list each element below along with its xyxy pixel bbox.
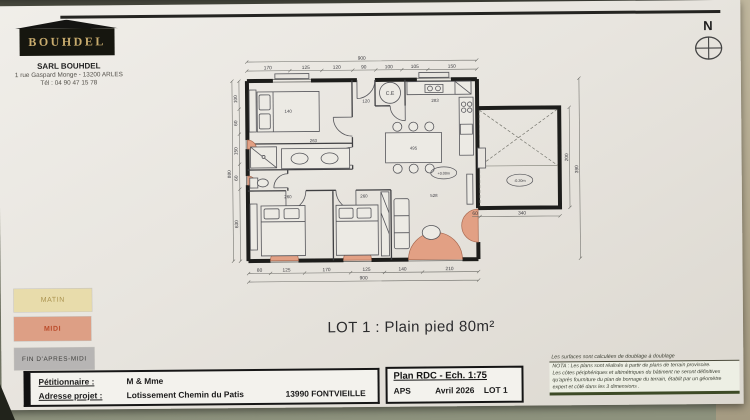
company-address: 1 rue Gaspard Monge - 13200 ARLES: [5, 71, 133, 79]
fridge: [455, 81, 471, 94]
dim-left: 100: [233, 95, 239, 103]
dim-bottom: 125: [283, 268, 291, 274]
shutter-boxes: [275, 72, 449, 79]
level-interior-label: +0.00m: [438, 172, 450, 176]
dim-top: 120: [333, 65, 341, 71]
dim-table: 495: [410, 146, 418, 151]
titleblock-client: Pétitionnaire : M & Mme Adresse projet :…: [23, 368, 379, 407]
dim-top: 90: [361, 64, 367, 70]
wardrobe-3: [381, 192, 390, 256]
compass-icon: [692, 33, 726, 65]
legend-midi: MIDI: [14, 316, 91, 341]
photo-of-plan-sheet: BOUHDEL SARL BOUHDEL 1 rue Gaspard Monge…: [0, 0, 750, 420]
dim-entry: 120: [362, 99, 370, 104]
plan-title: Plan RDC - Ech. 1:75: [393, 370, 515, 382]
dim-bath: 263: [310, 138, 318, 143]
dim-overall-top: 900: [358, 56, 366, 62]
wardrobe-1: [249, 90, 256, 132]
legend-matin: MATIN: [14, 288, 92, 312]
floor-plan: 900 170 125 120 90 100 105 150 80 125 17…: [227, 51, 593, 304]
dim-terrace: 340: [518, 210, 526, 216]
nota-line-4: expert et côté dans les 3 dimensions .: [553, 382, 737, 390]
dim-left: 630: [234, 220, 240, 228]
legend-fin-apres-midi: FIN D'APRES-MIDI: [14, 347, 94, 370]
furniture: [249, 81, 475, 257]
dim-bottom: 170: [323, 267, 331, 273]
shower: [250, 147, 276, 168]
logo-text: BOUHDEL: [28, 34, 106, 50]
dim-living: 528: [430, 193, 438, 198]
dim-top: 100: [385, 64, 393, 70]
level-markers: [431, 166, 533, 187]
dim-top: 170: [264, 65, 272, 71]
vanity-double-sink: [282, 148, 350, 169]
dim-left: 60: [233, 120, 239, 126]
dim-bed1: 140: [284, 109, 292, 114]
company-logo: BOUHDEL: [19, 28, 114, 56]
company-name: SARL BOUHDEL: [13, 61, 125, 71]
dim-top: 125: [302, 65, 310, 71]
dim-top: 105: [411, 64, 419, 70]
dim-right: 200: [564, 153, 570, 161]
wardrobe-2: [250, 204, 257, 250]
level-terrace-label: -0.20m: [514, 179, 526, 183]
adresse-label: Adresse projet :: [39, 390, 127, 401]
petitionnaire-label: Pétitionnaire :: [38, 376, 126, 387]
toilet: [250, 178, 269, 188]
dim-bottom: 125: [363, 267, 371, 273]
north-indicator: N: [686, 18, 730, 70]
dim-bottom: 80: [257, 268, 263, 274]
dim-bottom: 210: [446, 266, 454, 272]
paper-sheet: BOUHDEL SARL BOUHDEL 1 rue Gaspard Monge…: [0, 0, 744, 410]
petitionnaire-row: Pétitionnaire : M & Mme: [38, 374, 369, 387]
date-value: Avril 2026: [435, 385, 484, 395]
phase-value: APS: [394, 385, 436, 395]
nota-box: NOTA : Les plans sont réalisés à partir …: [549, 360, 739, 396]
drawing-title: LOT 1 : Plain pied 80m²: [241, 317, 581, 337]
company-phone: Tél : 04 90 47 15 78: [5, 79, 133, 87]
city-value: 13990 FONTVIEILLE: [286, 388, 370, 399]
adresse-row: Adresse projet : Lotissement Chemin du P…: [39, 388, 370, 401]
dim-left: 60: [234, 175, 240, 181]
bed-2: [261, 206, 305, 256]
adresse-value: Lotissement Chemin du Patis: [127, 389, 244, 400]
dim-top: 150: [448, 64, 456, 70]
dim-left: 150: [233, 147, 239, 155]
terrace-hatch: [479, 109, 558, 206]
dim-terrace-small: 60: [472, 211, 478, 217]
plan-meta-row: APS Avril 2026 LOT 1: [394, 385, 516, 396]
petitionnaire-value: M & Mme: [126, 376, 163, 386]
tv-bench: [467, 174, 473, 204]
sofa: [394, 199, 409, 249]
dim-right: 390: [574, 165, 580, 173]
terrace-pillar: [478, 148, 486, 168]
lot-value: LOT 1: [484, 385, 516, 395]
notes-block: Les surfaces sont calculées de doublage …: [549, 352, 739, 396]
dim-overall-left: 880: [227, 170, 233, 178]
dim-bed2: 260: [284, 194, 292, 199]
dim-kitchen: 283: [431, 98, 439, 103]
armchair: [422, 225, 440, 239]
titleblock-plan-info: Plan RDC - Ech. 1:75 APS Avril 2026 LOT …: [385, 366, 523, 404]
dim-bottom: 140: [399, 266, 407, 272]
dim-bed3: 260: [360, 194, 368, 199]
sheet-top-border: [60, 10, 720, 19]
water-heater-label: C.E: [386, 91, 395, 97]
north-label: N: [686, 18, 730, 33]
bed-3: [336, 205, 378, 255]
dim-overall-bottom: 900: [360, 275, 368, 281]
